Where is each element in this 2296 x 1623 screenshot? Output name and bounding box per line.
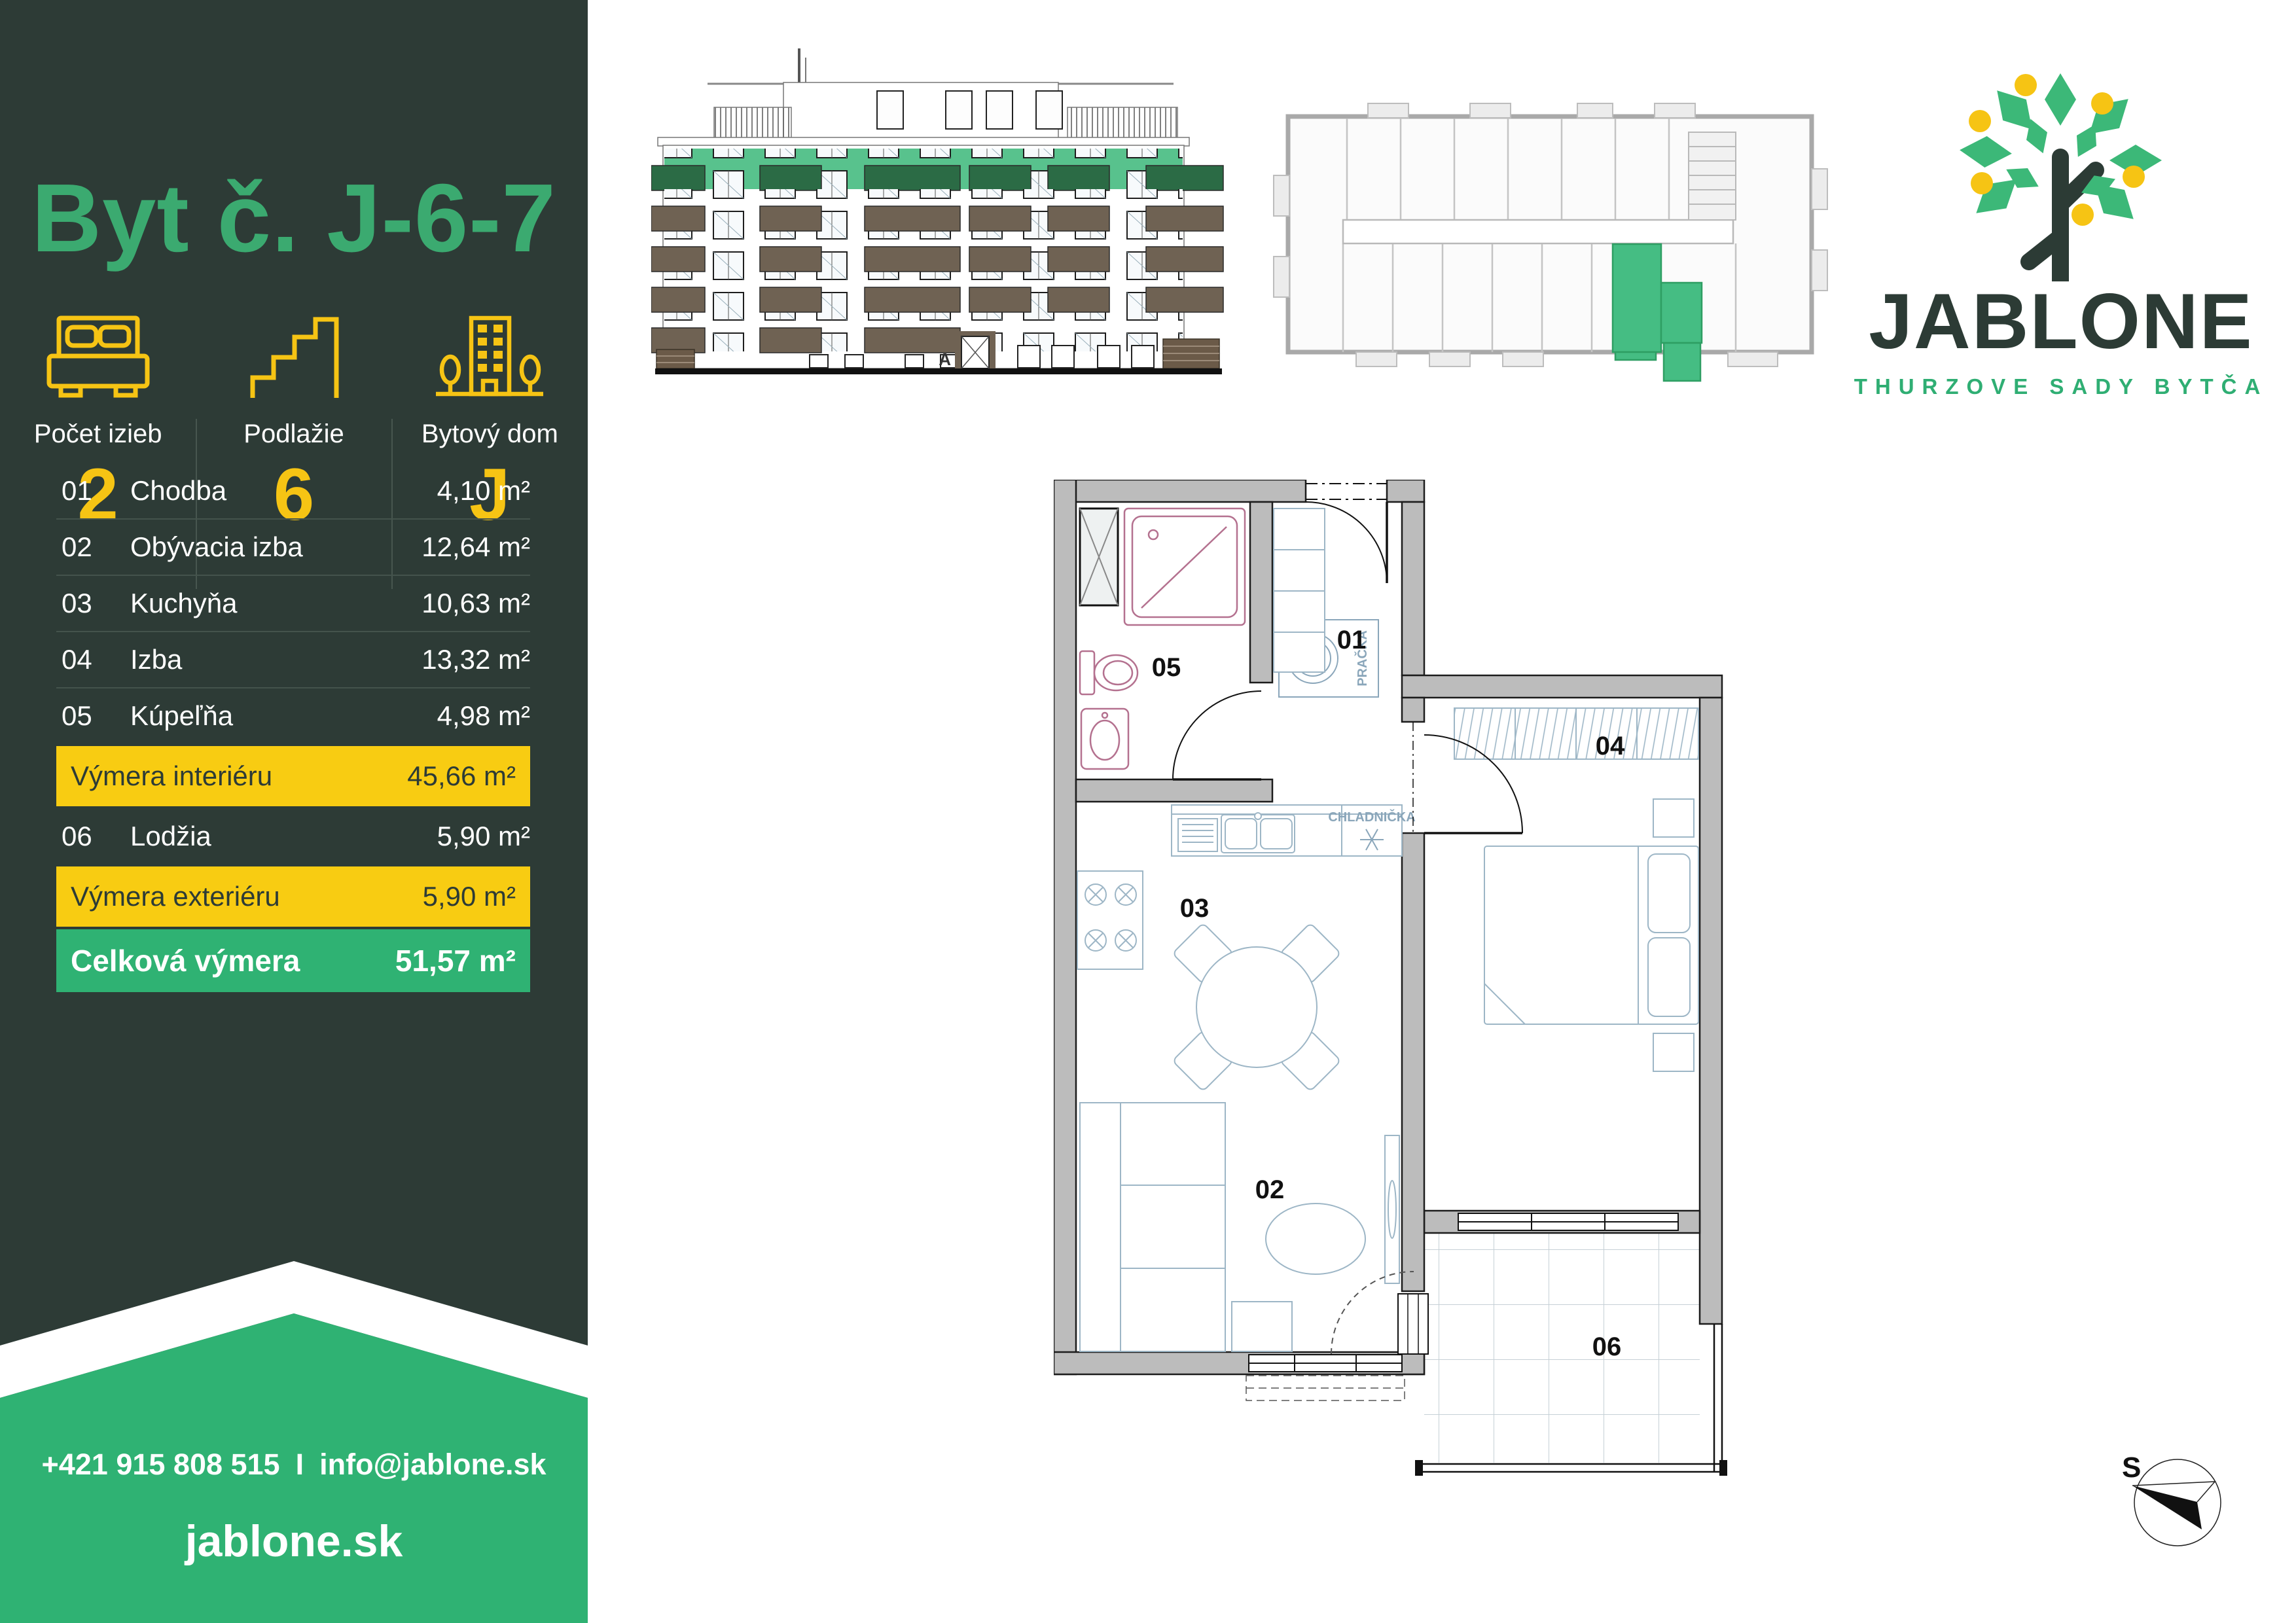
room-area: 5,90 m² — [437, 821, 530, 852]
summary-area: 5,90 m² — [423, 881, 516, 912]
stat-label: Podlažie — [243, 419, 344, 449]
summary-area: 51,57 m² — [395, 943, 516, 978]
bed-icon — [43, 298, 154, 402]
room-label-room: 04 — [1596, 732, 1625, 760]
email-address[interactable]: info@jablone.sk — [319, 1448, 546, 1481]
room-number: 03 — [56, 588, 130, 619]
logo-tree-graphic — [1918, 65, 2206, 281]
stairs-icon — [245, 298, 343, 402]
table-row: 02 Obývacia izba 12,64 m² — [56, 520, 530, 576]
interior-total-row: Výmera interiéru 45,66 m² — [56, 746, 530, 806]
room-label-living: 02 — [1255, 1175, 1285, 1204]
summary-label: Výmera exteriéru — [71, 881, 280, 912]
compass: S — [2121, 1443, 2232, 1558]
room-area: 10,63 m² — [422, 588, 530, 619]
room-table: 01 Chodba 4,10 m² 02 Obývacia izba 12,64… — [56, 463, 530, 992]
table-row: 01 Chodba 4,10 m² — [56, 463, 530, 520]
building-elevation-drawing: A — [651, 43, 1230, 383]
room-number: 05 — [56, 700, 130, 732]
room-label-hallway: 01 — [1337, 626, 1367, 654]
contact-separator: I — [296, 1448, 304, 1481]
stat-label: Bytový dom — [422, 419, 558, 449]
room-area: 13,32 m² — [422, 644, 530, 675]
room-number: 02 — [56, 531, 130, 563]
room-name: Kuchyňa — [130, 588, 422, 619]
room-area: 4,10 m² — [437, 475, 530, 507]
table-row: 05 Kúpeľňa 4,98 m² — [56, 688, 530, 743]
flyer-page: Byt č. J-6-7 Počet izieb 2 — [0, 0, 2296, 1623]
table-row: 04 Izba 13,32 m² — [56, 632, 530, 688]
room-number: 04 — [56, 644, 130, 675]
compass-label: S — [2122, 1452, 2141, 1484]
sidebar: Byt č. J-6-7 Počet izieb 2 — [0, 0, 588, 1623]
room-number: 01 — [56, 475, 130, 507]
room-number: 06 — [56, 821, 130, 852]
room-area: 4,98 m² — [437, 700, 530, 732]
room-label-bathroom: 05 — [1152, 653, 1181, 682]
contact-line: +421 915 808 515Iinfo@jablone.sk — [0, 1448, 588, 1482]
room-name: Lodžia — [130, 821, 437, 852]
exterior-total-row: Výmera exteriéru 5,90 m² — [56, 866, 530, 927]
room-name: Izba — [130, 644, 422, 675]
total-row: Celková výmera 51,57 m² — [56, 929, 530, 992]
building-icon — [431, 298, 548, 402]
phone-number[interactable]: +421 915 808 515 — [41, 1448, 279, 1481]
logo-subtitle: THURZOVE SADY BYTČA — [1826, 374, 2296, 399]
room-label-kitchen: 03 — [1180, 894, 1210, 923]
room-name: Obývacia izba — [130, 531, 422, 563]
room-name: Kúpeľňa — [130, 700, 437, 732]
apartment-floorplan-drawing: PRAČKA CHLADNIČKA — [1054, 480, 1738, 1514]
fridge-label: CHLADNIČKA — [1328, 809, 1415, 825]
table-row: 06 Lodžia 5,90 m² — [56, 809, 530, 864]
website-link[interactable]: jablone.sk — [185, 1516, 403, 1566]
apartment-title: Byt č. J-6-7 — [0, 163, 588, 274]
room-label-loggia: 06 — [1592, 1332, 1622, 1361]
stat-label: Počet izieb — [34, 419, 162, 449]
summary-label: Celková výmera — [71, 943, 300, 978]
summary-label: Výmera interiéru — [71, 760, 272, 792]
entrance-label: A — [939, 349, 951, 369]
room-area: 12,64 m² — [422, 531, 530, 563]
floor-overview-drawing — [1270, 98, 1833, 406]
logo-name: JABLONE — [1826, 276, 2296, 366]
table-row: 03 Kuchyňa 10,63 m² — [56, 576, 530, 632]
room-name: Chodba — [130, 475, 437, 507]
summary-area: 45,66 m² — [407, 760, 516, 792]
